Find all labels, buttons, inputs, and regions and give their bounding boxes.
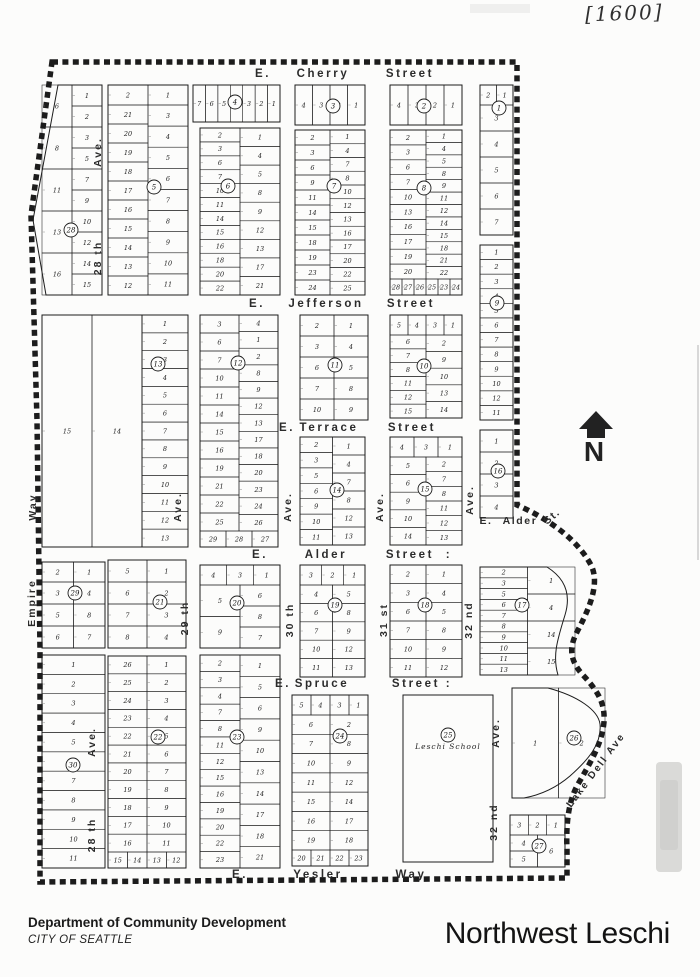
lot-number: 2 <box>432 101 437 109</box>
lot-number: 12 <box>124 282 132 290</box>
lot-number: 7 <box>87 633 92 641</box>
block-number: 6 <box>226 183 231 191</box>
lot-number: 15 <box>308 224 316 232</box>
block-number: 21 <box>155 599 165 607</box>
lot-number: 20 <box>215 823 224 831</box>
street-label: Street <box>388 422 436 434</box>
lot-number: 9 <box>310 179 314 187</box>
lot-number: 6 <box>310 164 314 172</box>
block: 76543214 <box>193 85 280 122</box>
lot-number: 10 <box>256 747 264 755</box>
lot-number: 9 <box>256 386 260 394</box>
lot-number: 1 <box>352 571 356 579</box>
block: 4315968720 <box>200 565 280 648</box>
avenue-label: Empire <box>26 579 38 627</box>
lot-number: 9 <box>442 356 446 364</box>
lot-number: 19 <box>404 253 412 261</box>
lot-number: 13 <box>254 419 262 427</box>
lot-number: 3 <box>218 145 222 153</box>
block-number: 18 <box>421 602 430 610</box>
lot-number: 15 <box>114 856 122 864</box>
lot-number: 9 <box>314 503 318 511</box>
lot-number: 3 <box>319 101 323 109</box>
lot-number: 7 <box>314 627 319 635</box>
lot-number: 17 <box>404 238 413 246</box>
lot-number: 3 <box>247 100 251 108</box>
block: 5678123421 <box>108 560 186 648</box>
lot-number: 14 <box>404 533 412 541</box>
lot-number: 14 <box>440 406 448 414</box>
lot-number: 3 <box>166 112 170 120</box>
avenue-label: Way <box>27 493 39 520</box>
lot-number: 13 <box>404 208 412 216</box>
lot-number: 8 <box>494 351 498 359</box>
lot-number: 16 <box>404 223 412 231</box>
block: 431569101427811121315 <box>390 437 462 545</box>
block-number: 20 <box>232 600 242 608</box>
lot-number: 1 <box>451 101 455 109</box>
lot-number: 27 <box>403 283 413 291</box>
lot-number: 24 <box>307 284 316 292</box>
lot-number: 8 <box>218 725 222 733</box>
lot-number: 22 <box>215 284 224 292</box>
lot-number: 13 <box>256 245 264 253</box>
lot-number: 9 <box>71 816 75 824</box>
lot-number: 5 <box>314 472 318 480</box>
street-label: E. <box>479 515 492 527</box>
lot-number: 3 <box>218 676 222 684</box>
lot-number: 10 <box>161 481 169 489</box>
lot-number: 2 <box>55 568 60 576</box>
street-label: Jefferson <box>288 298 363 310</box>
lot-number: 3 <box>502 580 506 588</box>
lot-number: 12 <box>254 403 262 411</box>
lot-number: 20 <box>296 854 305 862</box>
lot-number: 21 <box>315 854 324 862</box>
lot-number: 5 <box>56 611 60 619</box>
avenue-label: Ave. <box>374 492 386 522</box>
lot-number: 10 <box>404 645 412 653</box>
lot-number: 13 <box>345 532 353 540</box>
lot-number: 2 <box>162 338 167 346</box>
block: 2135648729 <box>42 562 105 648</box>
block-outline <box>403 695 493 862</box>
lot-number: 1 <box>258 662 262 670</box>
scan-smudge-top <box>470 4 530 13</box>
lot-number: 7 <box>442 475 447 483</box>
lot-number: 17 <box>123 822 132 830</box>
lot-number: 2 <box>125 91 130 99</box>
lot-number: 10 <box>440 373 448 381</box>
lot-number: 2 <box>534 821 539 829</box>
lot-number: 2 <box>84 113 89 121</box>
lot-number: 7 <box>494 336 499 344</box>
lot-number: 2 <box>346 721 351 729</box>
lot-number: 26 <box>122 661 131 669</box>
lot-number: 16 <box>307 817 315 825</box>
lot-number: 2 <box>70 680 75 688</box>
lot-number: 4 <box>217 692 222 700</box>
lot-number: 16 <box>216 791 224 799</box>
lot-number: 2 <box>313 441 318 449</box>
lot-number: 19 <box>124 149 132 157</box>
lot-number: 8 <box>125 633 129 641</box>
lot-number: 5 <box>347 591 351 599</box>
lot-number: 9 <box>502 634 506 642</box>
block: 3671011141516192122254128912131718202324… <box>200 315 278 547</box>
lot-number: 8 <box>166 217 170 225</box>
lot-number: 5 <box>125 567 129 575</box>
street-label: Street <box>386 549 434 561</box>
lot-number: 12 <box>345 779 353 787</box>
lot-number: 13 <box>53 228 61 236</box>
lot-number: 1 <box>448 443 452 451</box>
lot-number: 9 <box>442 182 446 190</box>
lot-number: 5 <box>442 608 446 616</box>
lot-number: 14 <box>216 215 224 223</box>
lot-number: 16 <box>123 839 131 847</box>
lot-number: 11 <box>161 499 169 507</box>
street-label: E. <box>232 869 248 881</box>
lot-number: 9 <box>442 645 446 653</box>
lot-number: 5 <box>406 462 410 470</box>
lot-number: 4 <box>257 152 262 160</box>
street-label: : <box>446 549 452 561</box>
lot-number: 11 <box>216 741 224 749</box>
lot-number: 1 <box>494 437 498 445</box>
lot-number: 4 <box>313 591 318 599</box>
lot-number: 14 <box>345 798 353 806</box>
lot-number: 14 <box>547 631 555 639</box>
lot-number: 16 <box>343 229 351 237</box>
lot-number: 5 <box>258 171 262 179</box>
lot-number: 25 <box>122 679 131 687</box>
lot-number: 2 <box>441 340 446 348</box>
block-number: 13 <box>154 361 163 369</box>
lot-number: 4 <box>396 101 401 109</box>
lot-number: 24 <box>253 502 262 510</box>
lot-number: 1 <box>87 568 91 576</box>
lot-number: 5 <box>522 855 526 863</box>
lot-number: 16 <box>53 270 61 278</box>
lot-number: 3 <box>309 571 313 579</box>
lot-number: 23 <box>122 715 131 723</box>
lot-number: 4 <box>441 145 446 153</box>
lot-number: 1 <box>354 101 358 109</box>
lot-number: 16 <box>216 243 224 251</box>
lot-number: 7 <box>309 740 314 748</box>
lot-number: 1 <box>533 739 537 747</box>
lot-number: 5 <box>163 392 167 400</box>
block-number: 19 <box>331 602 340 610</box>
avenue-label: 28 th <box>86 818 98 853</box>
lot-number: 11 <box>215 392 223 400</box>
lot-number: 7 <box>164 768 169 776</box>
lot-number: 15 <box>216 229 224 237</box>
lot-number: 3 <box>164 611 168 619</box>
block-number: 5 <box>152 184 157 192</box>
lot-number: 22 <box>122 732 131 740</box>
lot-number: 12 <box>161 517 169 525</box>
lot-number: 4 <box>348 343 353 351</box>
lot-number: 6 <box>494 192 498 200</box>
lot-number: 11 <box>53 186 61 194</box>
lot-number: 8 <box>258 613 262 621</box>
street-label: St. <box>541 506 563 527</box>
lot-number: 6 <box>406 164 410 172</box>
block: 43213 <box>295 85 365 125</box>
street-label-group: E.TerraceStreet <box>279 422 436 434</box>
lot-number: 6 <box>166 175 170 183</box>
lot-number: 4 <box>210 571 215 579</box>
street-label: Street <box>387 298 435 310</box>
lot-number: 15 <box>63 427 71 435</box>
lot-number: 3 <box>494 278 498 286</box>
lot-number: 3 <box>424 443 428 451</box>
block: 235678910111314141517 <box>480 567 575 675</box>
lot-number: 12 <box>404 394 412 402</box>
lot-number: 20 <box>253 469 262 477</box>
lot-number: 11 <box>162 839 170 847</box>
lot-number: 14 <box>215 410 223 418</box>
lot-number: 15 <box>83 281 91 289</box>
lot-number: 26 <box>253 519 262 527</box>
lot-number: 8 <box>55 144 59 152</box>
lot-number: 9 <box>258 208 262 216</box>
lot-number: 2 <box>441 461 446 469</box>
lot-number: 7 <box>406 352 411 360</box>
lot-number: 2 <box>405 134 410 142</box>
lot-number: 4 <box>86 589 91 597</box>
block: 2121201918171615141312345678910115 <box>108 85 188 295</box>
lot-number: 3 <box>315 343 319 351</box>
lot-number: 3 <box>406 149 410 157</box>
lot-number: 5 <box>397 321 401 329</box>
lot-number: 25 <box>214 518 223 526</box>
lot-number: 5 <box>502 590 506 598</box>
lot-number: 1 <box>349 322 353 330</box>
lot-number: 11 <box>308 194 316 202</box>
lot-number: 4 <box>344 147 349 155</box>
lot-number: 2 <box>258 100 263 108</box>
avenue-label: 29 th <box>179 601 191 636</box>
lot-number: 14 <box>440 219 448 227</box>
lot-number: 4 <box>301 101 306 109</box>
lot-number: 8 <box>256 369 260 377</box>
street-label-group: E.CherryStreet <box>255 68 434 80</box>
block-number: 4 <box>232 99 237 107</box>
lot-number: 17 <box>254 436 263 444</box>
block: 236911141518192324147810121316172022257 <box>295 130 365 295</box>
lot-number: 18 <box>216 257 224 265</box>
lot-number: 11 <box>440 195 448 203</box>
lot-number: 24 <box>122 697 131 705</box>
block-number: 1 <box>497 105 501 113</box>
lot-number: 22 <box>342 271 351 279</box>
street-label: E. <box>255 68 271 80</box>
lot-number: 3 <box>164 697 168 705</box>
lot-number: 4 <box>493 503 498 511</box>
lot-number: 7 <box>163 427 168 435</box>
block-number: 7 <box>332 183 337 191</box>
street-label: E. <box>249 298 265 310</box>
lot-number: 21 <box>123 111 132 119</box>
lot-number: 1 <box>442 571 446 579</box>
avenue-label: 32 nd <box>463 601 475 638</box>
lot-number: 1 <box>451 321 455 329</box>
lot-number: 2 <box>217 131 222 139</box>
avenue-label: Ave. <box>92 137 104 167</box>
lot-number: 3 <box>494 114 498 122</box>
block-number: 3 <box>331 103 336 111</box>
lot-number: 13 <box>500 666 508 674</box>
lot-number: 12 <box>345 646 353 654</box>
lot-number: 13 <box>440 534 448 542</box>
lot-number: 25 <box>342 284 351 292</box>
lot-number: 11 <box>312 664 320 672</box>
block-number: 27 <box>534 843 544 851</box>
street-label-group: E.JeffersonStreet <box>249 298 435 310</box>
block-number: 11 <box>331 362 340 370</box>
lot-number: 4 <box>163 715 168 723</box>
lot-number: 1 <box>164 661 168 669</box>
lot-number: 11 <box>312 534 320 542</box>
lot-number: 6 <box>163 409 167 417</box>
lot-number: 26 <box>415 283 424 291</box>
lot-number: 14 <box>113 427 121 435</box>
lot-number: 7 <box>345 161 350 169</box>
lot-number: 8 <box>345 174 349 182</box>
block: 1234567891012119 <box>480 245 513 420</box>
lot-number: 7 <box>125 611 130 619</box>
lot-number: 15 <box>307 798 315 806</box>
lot-number: 2 <box>217 659 222 667</box>
lot-number: 1 <box>356 701 360 709</box>
lot-number: 16 <box>124 206 132 214</box>
lot-number: 4 <box>399 443 404 451</box>
lot-number: 6 <box>406 480 410 488</box>
lot-number: 6 <box>258 592 262 600</box>
lot-number: 20 <box>123 130 132 138</box>
lot-number: 8 <box>347 609 351 617</box>
north-arrow: N <box>579 411 613 467</box>
lot-number: 11 <box>404 664 412 672</box>
block: 123416 <box>480 430 513 518</box>
street-label: Spruce <box>295 678 350 690</box>
lot-number: 6 <box>315 364 319 372</box>
avenue-label: Ave. <box>86 727 98 757</box>
lot-number: 7 <box>218 709 223 717</box>
lot-number: 9 <box>406 497 410 505</box>
lot-number: 22 <box>439 269 448 277</box>
lot-number: 3 <box>85 134 89 142</box>
lot-number: 3 <box>310 149 314 157</box>
lot-number: 11 <box>164 281 172 289</box>
lot-number: 8 <box>87 611 91 619</box>
lot-number: 7 <box>494 218 499 226</box>
lot-number: 20 <box>215 270 224 278</box>
lot-number: 15 <box>215 428 223 436</box>
lot-number: 4 <box>346 460 351 468</box>
lot-number: 8 <box>347 496 351 504</box>
lot-number: 11 <box>307 779 315 787</box>
north-arrow-icon <box>579 411 613 438</box>
lot-number: 12 <box>440 519 448 527</box>
lot-number: 13 <box>124 263 132 271</box>
lot-number: 3 <box>494 481 498 489</box>
lot-number: 3 <box>406 589 410 597</box>
lot-number: 4 <box>162 374 167 382</box>
lot-number: 4 <box>70 719 75 727</box>
lot-number: 10 <box>164 260 172 268</box>
lot-number: 7 <box>347 478 352 486</box>
lot-number: 19 <box>307 837 315 845</box>
lot-number: 17 <box>124 187 133 195</box>
department-name: Department of Community Development <box>28 915 286 930</box>
block: 2356910111478121314 <box>300 437 365 545</box>
lot-number: 6 <box>494 322 498 330</box>
lot-number: 7 <box>406 178 411 186</box>
block-number: 25 <box>443 732 453 740</box>
lot-number: 9 <box>85 197 89 205</box>
lot-number: 12 <box>172 856 180 864</box>
lot-number: 7 <box>218 173 223 181</box>
lot-number: 10 <box>343 188 351 196</box>
block-number: 10 <box>420 363 429 371</box>
lot-number: 10 <box>313 406 321 414</box>
lot-number: 8 <box>442 627 446 635</box>
block: 2367101114151618202214589121317216 <box>200 128 280 295</box>
lot-number: 23 <box>439 283 448 291</box>
lot-number: 17 <box>345 817 354 825</box>
lot-number: 10 <box>162 822 170 830</box>
lot-number: 1 <box>549 577 553 585</box>
lot-number: 23 <box>215 856 224 864</box>
avenue-label: 30 th <box>284 603 296 638</box>
lot-number: 21 <box>439 257 448 265</box>
lot-number: 4 <box>493 140 498 148</box>
school-label: Leschi School <box>414 742 481 751</box>
lot-number: 6 <box>164 750 168 758</box>
lot-number: 3 <box>337 701 341 709</box>
lot-number: 12 <box>345 514 353 522</box>
plat-map: 2134567143212432137654321421212019181716… <box>0 0 700 977</box>
lot-number: 4 <box>521 839 526 847</box>
avenue-label: Ave. <box>172 492 184 522</box>
lot-number: 3 <box>433 321 437 329</box>
block: 54316781112152910131410 <box>390 315 462 418</box>
lot-number: 9 <box>349 406 353 414</box>
lot-number: 1 <box>503 91 507 99</box>
lot-number: 21 <box>122 750 131 758</box>
lot-number: 4 <box>165 133 170 141</box>
map-title: Northwest Leschi <box>445 917 670 951</box>
lot-number: 9 <box>347 760 351 768</box>
lot-number: 10 <box>404 515 412 523</box>
block-number: 24 <box>335 733 345 741</box>
lot-number: 27 <box>260 535 270 543</box>
block-number: 30 <box>69 762 78 770</box>
street-label: Alder <box>305 549 347 561</box>
street-label: E. <box>252 549 268 561</box>
lot-number: 10 <box>404 193 412 201</box>
scanned-map-page: [1600] 213456714321243213765432142121201… <box>0 0 700 977</box>
lot-number: 21 <box>255 854 264 862</box>
lot-number: 9 <box>347 627 351 635</box>
lot-number: 2 <box>329 571 334 579</box>
lot-number: 1 <box>256 336 260 344</box>
lot-number: 3 <box>71 700 75 708</box>
